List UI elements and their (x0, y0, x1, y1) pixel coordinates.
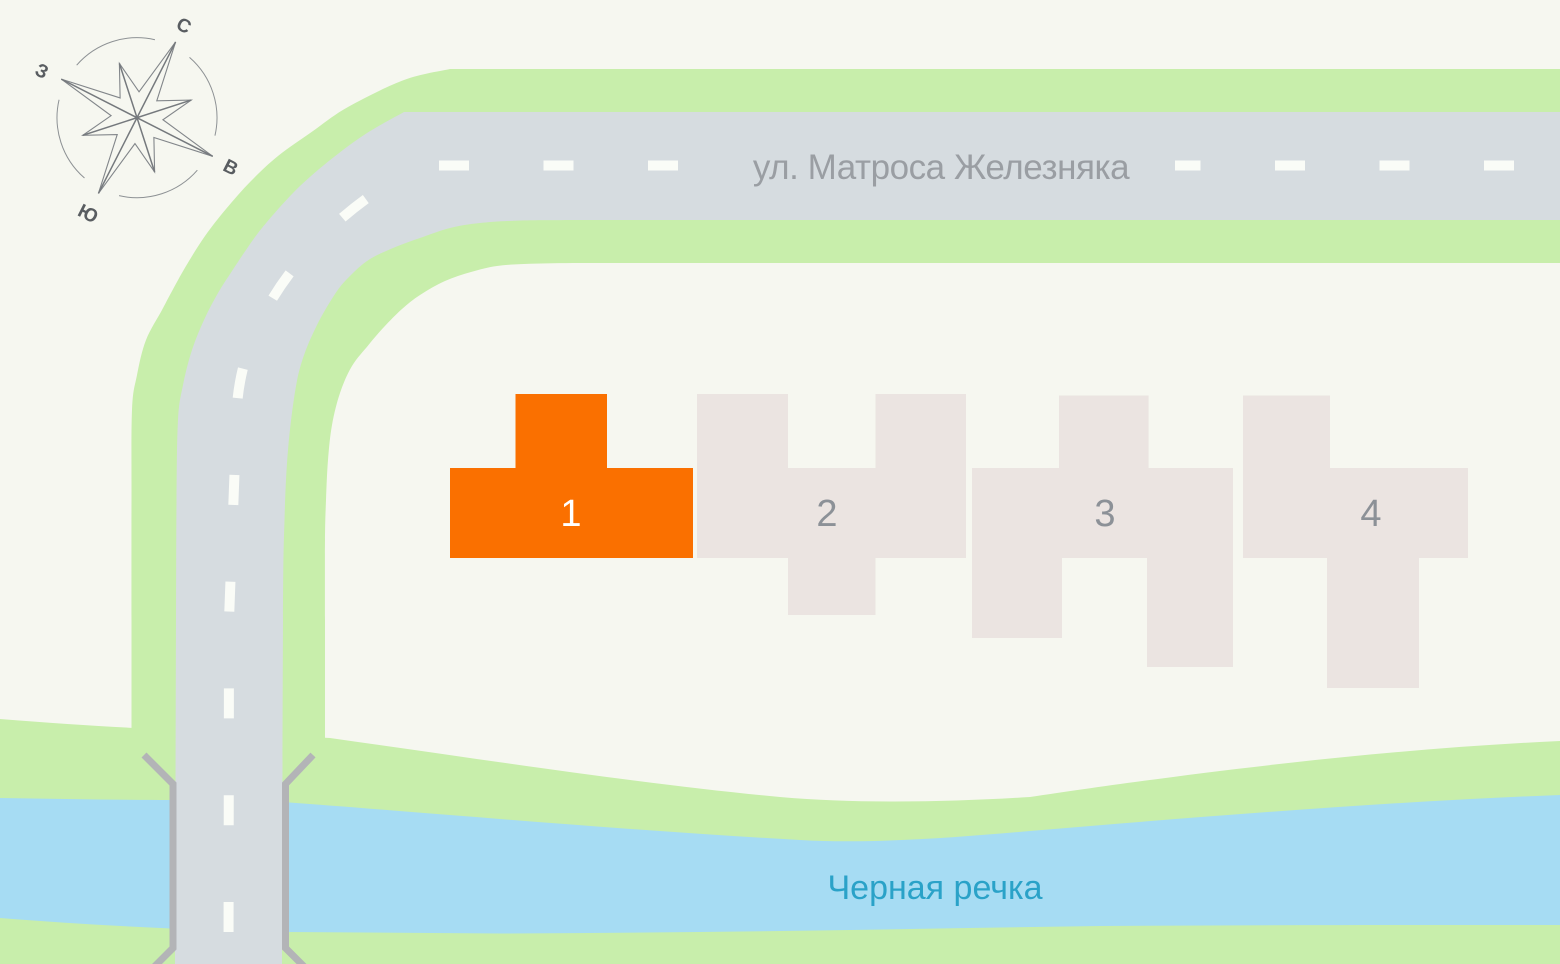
svg-text:2: 2 (816, 493, 837, 535)
svg-text:3: 3 (1094, 493, 1115, 535)
svg-text:4: 4 (1360, 493, 1381, 535)
svg-text:ул. Матроса Железняка: ул. Матроса Железняка (753, 148, 1130, 187)
svg-text:Черная речка: Черная речка (828, 869, 1043, 907)
svg-text:1: 1 (560, 493, 581, 535)
